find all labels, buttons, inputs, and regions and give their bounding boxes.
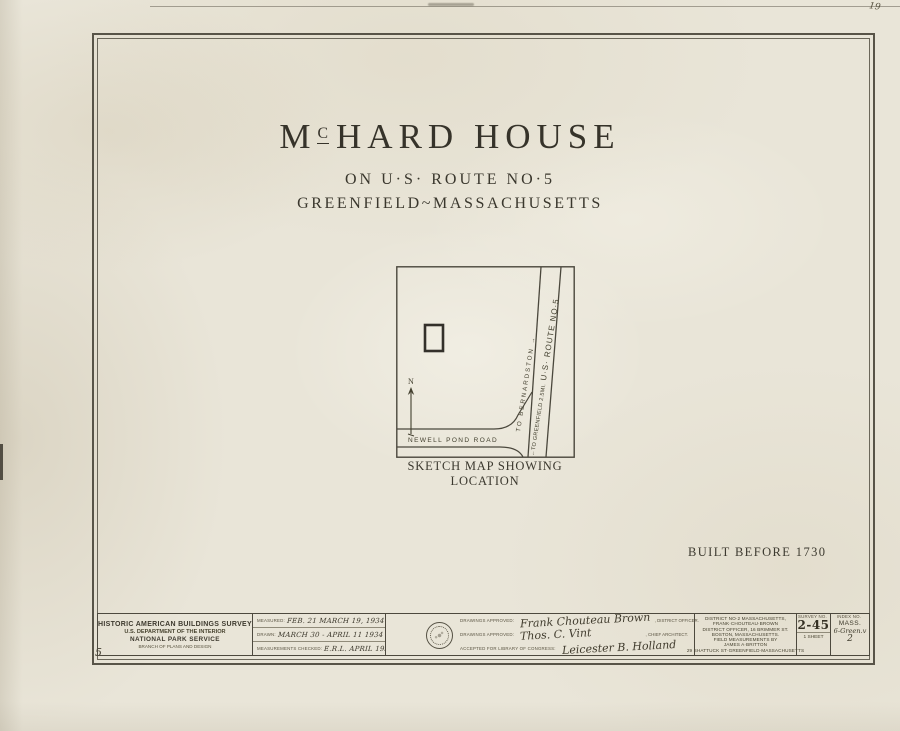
approval-row-library-of-congress: ACCEPTED FOR LIBRARY OF CONGRESS: Leices…: [386, 641, 694, 655]
habs-drawing-sheet: 19 5 MCHARD HOUSE ON U·S· ROUTE NO·5 GRE…: [0, 0, 900, 731]
date-row-drawn: DRAWN: MARCH 30 - APRIL 11 1934: [253, 628, 385, 642]
page-title: MCHARD HOUSE: [0, 117, 900, 157]
newell-pond-road-lower-edge: [397, 447, 523, 457]
scan-stray-mark: [0, 444, 3, 480]
north-label: N: [408, 377, 414, 386]
signature-library-of-congress: Leicester B. Holland: [562, 641, 677, 655]
subtitle-location: GREENFIELD~MASSACHUSETTS: [0, 195, 900, 213]
index-number: 2: [847, 635, 853, 643]
survey-sheet-count: 1 SHEET: [804, 635, 824, 640]
corner-page-number: 19: [868, 1, 881, 12]
survey-divider: [797, 632, 830, 633]
district-line: 29 SHATTUCK ST·GREENFIELD·MASSACHUSETTS: [687, 648, 804, 653]
title-block-agency: HISTORIC AMERICAN BUILDINGS SURVEY U.S. …: [98, 614, 253, 655]
title-block-dates: MEASURED: FEB. 21 MARCH 19, 1934 DRAWN: …: [253, 614, 386, 655]
subtitle-route: ON U·S· ROUTE NO·5: [0, 171, 900, 189]
drawn-label: DRAWN:: [257, 632, 276, 637]
drawn-value: MARCH 30 - APRIL 11 1934: [278, 631, 384, 639]
measured-label: MEASURED:: [257, 618, 285, 623]
newell-pond-road-label: NEWELL POND ROAD: [408, 437, 498, 444]
to-bernardston-label: TO BERNARDSTON →: [515, 335, 537, 432]
date-row-measured: MEASURED: FEB. 21 MARCH 19, 1934: [253, 614, 385, 628]
approved-label-1: DRAWINGS APPROVED:: [460, 618, 514, 623]
date-row-checked: MEASUREMENTS CHECKED: E.R.L. APRIL 1934: [253, 642, 385, 655]
agency-survey-name: HISTORIC AMERICAN BUILDINGS SURVEY: [98, 621, 252, 628]
north-arrow-base: [408, 434, 414, 436]
title-initial: M: [279, 117, 316, 156]
index-state: MASS.: [839, 620, 862, 627]
house-footprint: [425, 325, 443, 351]
survey-number: 2-45: [797, 619, 829, 632]
title-rest: HARD HOUSE: [336, 117, 621, 156]
agency-service: NATIONAL PARK SERVICE: [130, 636, 220, 643]
title-superscript-c: C: [317, 125, 330, 144]
route5-label: ←TO GREENFIELD 2.5MI. U·S· ROUTE NO·5: [527, 298, 561, 457]
approval-row-district-officer: DRAWINGS APPROVED: Frank Chouteau Brown …: [386, 614, 694, 628]
title-block: HISTORIC AMERICAN BUILDINGS SURVEY U.S. …: [97, 613, 870, 656]
us-route-5-label: U·S· ROUTE NO·5: [538, 298, 560, 385]
agency-branch: BRANCH OF PLANS AND DESIGN: [138, 644, 211, 649]
approved-label-2: DRAWINGS APPROVED:: [460, 632, 514, 637]
scan-fold-line: [150, 6, 900, 7]
sketch-map-svg: N NEWELL POND ROAD TO BERNARDSTON → ←TO …: [396, 266, 575, 458]
title-block-survey-no: SURVEY NO. 2-45 1 SHEET: [797, 614, 831, 655]
title-block-index-no: INDEX NO. MASS. 6-Green.v 2: [831, 614, 869, 655]
checked-value: E.R.L. APRIL 1934: [324, 645, 385, 653]
scan-smudge: [428, 3, 474, 6]
role-chief-architect: , CHIEF ARCHITECT.: [646, 632, 694, 637]
signature-chief-architect: Thos. C. Vint: [520, 629, 592, 641]
map-caption: SKETCH MAP SHOWING LOCATION: [385, 459, 585, 489]
title-block-district: DISTRICT NO·2 MASSACHUSETTS, FRANK·CHOUT…: [695, 614, 797, 655]
checked-label: MEASUREMENTS CHECKED:: [257, 646, 322, 651]
accepted-label: ACCEPTED FOR LIBRARY OF CONGRESS:: [460, 646, 556, 651]
index-no-label: INDEX NO.: [837, 614, 861, 619]
built-before-note: BUILT BEFORE 1730: [688, 545, 826, 560]
agency-department: U.S. DEPARTMENT OF THE INTERIOR: [124, 629, 225, 635]
newell-pond-road-upper-edge: [397, 392, 532, 429]
measured-value: FEB. 21 MARCH 19, 1934: [287, 617, 385, 625]
sketch-map: N NEWELL POND ROAD TO BERNARDSTON → ←TO …: [396, 266, 575, 458]
title-block-approvals: DRAWINGS APPROVED: Frank Chouteau Brown …: [386, 614, 695, 655]
